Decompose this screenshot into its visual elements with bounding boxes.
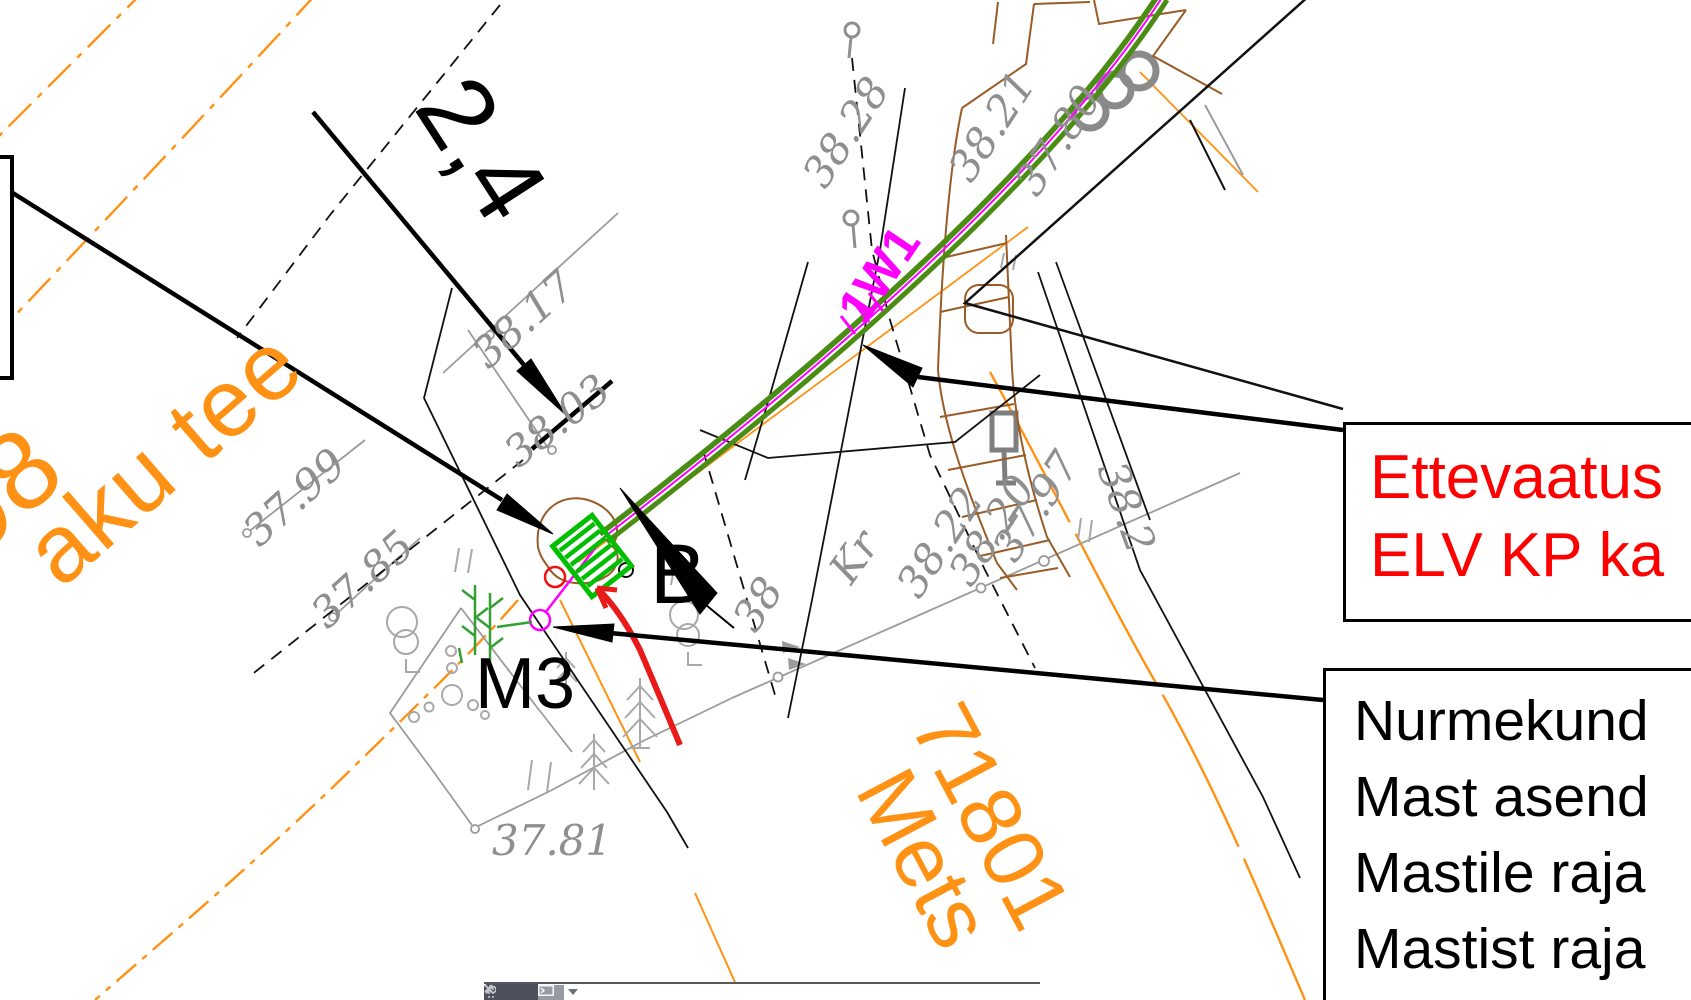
elevation-label: 37.81 — [492, 816, 612, 865]
street-name-label: aku tee — [4, 309, 322, 606]
info-line: Nurmekund — [1354, 683, 1691, 759]
elevation-label: 37.99 — [233, 439, 355, 556]
warning-line: ELV KP ka — [1370, 517, 1691, 595]
cable-tag-label: 1W1 — [827, 216, 931, 333]
command-line-grip[interactable] — [484, 984, 538, 1000]
command-prompt-icon — [538, 985, 554, 996]
mast-label: M3 — [475, 644, 575, 724]
elevation-label: 38 — [723, 568, 793, 640]
warning-callout[interactable]: Ettevaatus ELV KP ka — [1343, 422, 1691, 622]
elevation-label: 38.2 — [1088, 455, 1166, 560]
warning-line: Ettevaatus — [1370, 439, 1691, 517]
info-callout[interactable]: Nurmekund Mast asend Mastile raja Mastis… — [1323, 668, 1691, 1000]
command-line-bar[interactable] — [484, 982, 1040, 1000]
customize-wrench-icon[interactable] — [484, 984, 496, 995]
point-b-label: B — [650, 527, 706, 621]
info-line: Mastile raja — [1354, 835, 1691, 911]
elevation-label: 38.17 — [462, 261, 584, 378]
dimension-text: 2,4 — [393, 57, 569, 241]
command-prompt-button[interactable] — [538, 985, 564, 1000]
cad-canvas[interactable]: 38.17 38.03 37.99 37.85 37.81 38.28 38.2… — [0, 0, 1691, 1000]
info-line: Mastist raja — [1354, 911, 1691, 987]
callout-box-offscreen[interactable] — [0, 155, 14, 380]
ditch-label: Kr — [819, 519, 891, 592]
recent-commands-dropdown-icon[interactable] — [568, 989, 578, 995]
info-line: Mast asend — [1354, 759, 1691, 835]
elevation-label: 38.03 — [495, 364, 620, 477]
elevation-label: 38.28 — [793, 68, 900, 196]
mast-symbol — [553, 515, 632, 596]
elevation-label: 37.85 — [301, 521, 423, 638]
